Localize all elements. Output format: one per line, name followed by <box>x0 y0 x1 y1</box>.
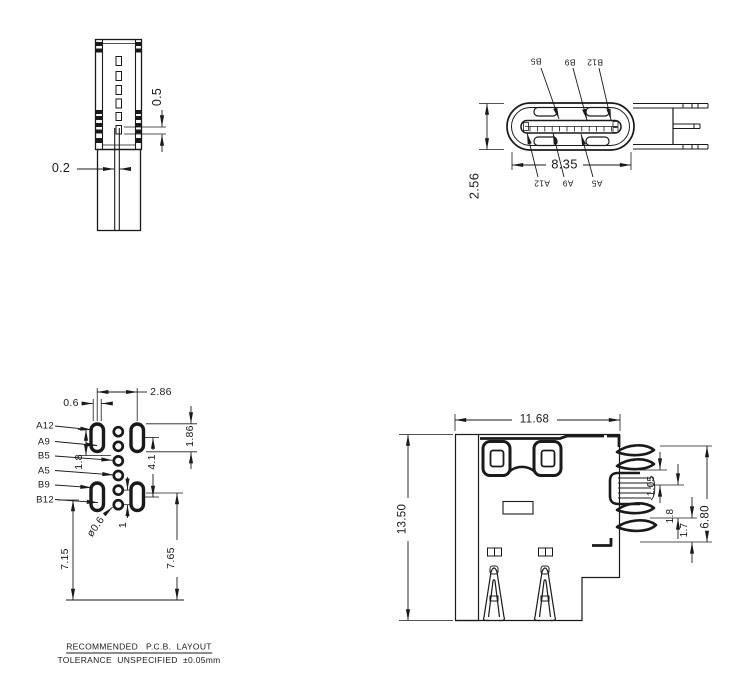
latch-cutout <box>586 137 609 146</box>
dim-13-50-label: 13.50 <box>397 504 409 534</box>
contact-pins <box>116 57 122 135</box>
drawing-canvas <box>0 0 750 698</box>
pin-label-b5: B5 <box>531 57 542 66</box>
dim-11-68-label: 11.68 <box>520 414 549 426</box>
pin-holes <box>114 427 123 509</box>
dim-0-5-lines <box>124 110 166 152</box>
pad-label-a9: A9 <box>38 437 50 447</box>
dim-1-05-label: 1.05 <box>647 476 657 497</box>
dim-6-80-label: 6.80 <box>700 505 712 529</box>
body-outline <box>456 435 620 621</box>
footer-tolerance: TOLERANCE UNSPECIFIED ±0.05mm <box>57 656 220 665</box>
dim-1-7-label: 1.7 <box>680 523 690 538</box>
dim-8-35-label: 8.35 <box>551 157 578 170</box>
side-view <box>77 40 166 231</box>
dim-0-5-label: 0.5 <box>151 88 164 106</box>
pin-label-b12: B12 <box>587 57 603 66</box>
solder-pads <box>488 548 553 556</box>
pin-label-a9: A9 <box>563 179 574 188</box>
dim-1-label: 1 <box>117 521 128 527</box>
latch-cutout <box>534 137 557 146</box>
pin-label-b9: B9 <box>565 57 576 66</box>
pad-label-b5: B5 <box>38 451 50 461</box>
body-left-flange <box>456 435 479 621</box>
pad-label-b12: B12 <box>36 495 54 505</box>
pin-label-a5: A5 <box>592 179 603 188</box>
technical-drawing-page: 0.5 0.2 B5 B9 B12 A12 A9 A5 8.35 2.56 A1… <box>0 0 750 698</box>
dim-1-8-label: 1.8 <box>74 454 85 470</box>
dim-1-8-top-label: 1.8 <box>666 509 676 524</box>
corner-clip <box>607 436 619 447</box>
footer-title: RECOMMENDED P.C.B. LAYOUT <box>66 643 212 654</box>
center-window <box>503 502 533 515</box>
front-view <box>479 68 708 177</box>
dim-0-6-label: 0.6 <box>63 397 79 408</box>
shell-edge <box>480 436 604 439</box>
dim-0-2-label: 0.2 <box>52 162 70 175</box>
solder-legs <box>484 566 556 621</box>
pin-label-a12: A12 <box>534 179 550 188</box>
mounting-bracket <box>633 104 708 150</box>
pad-label-a12: A12 <box>36 421 54 431</box>
dim-2-86-label: 2.86 <box>150 386 172 397</box>
dim-1-86-label: 1.86 <box>185 425 196 447</box>
pad-label-a5: A5 <box>38 466 50 476</box>
dim-2-56-lines <box>479 104 504 150</box>
dim-7-65-label: 7.65 <box>166 547 177 569</box>
pad-label-b9: B9 <box>38 480 50 490</box>
mounting-holes <box>483 442 561 476</box>
tongue-pin-ticks <box>530 127 611 132</box>
dim-7-15-label: 7.15 <box>59 548 70 570</box>
dim-2-56-label: 2.56 <box>468 173 481 200</box>
dim-4-1-label: 4.1 <box>146 454 157 470</box>
latch-cutout <box>586 108 609 117</box>
latch-cutout <box>534 108 557 117</box>
